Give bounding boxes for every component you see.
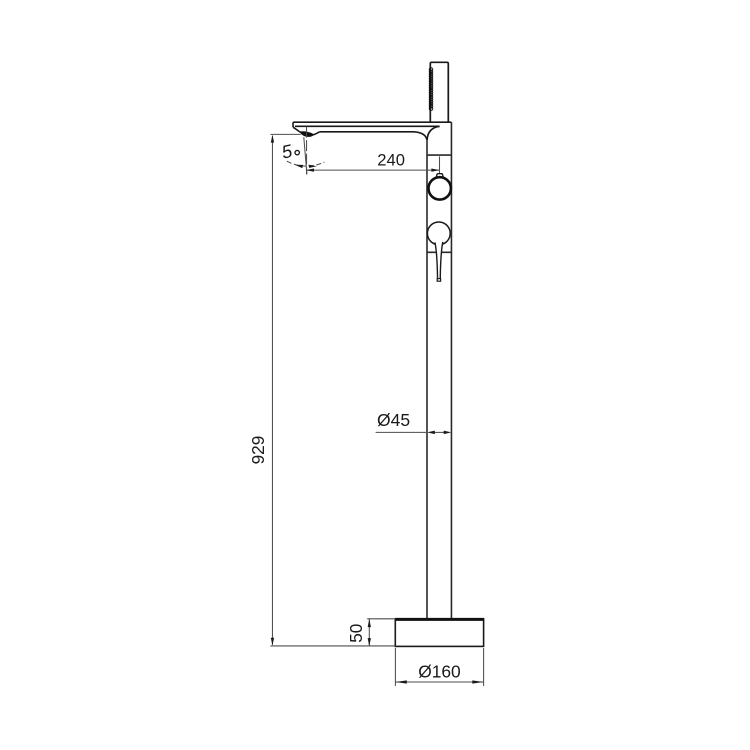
svg-text:Ø160: Ø160 [418,662,461,682]
svg-text:Ø45: Ø45 [377,410,410,430]
svg-text:240: 240 [377,151,405,170]
svg-text:5: 5 [280,140,295,163]
svg-text:50: 50 [346,624,366,643]
svg-text:929: 929 [248,436,268,465]
